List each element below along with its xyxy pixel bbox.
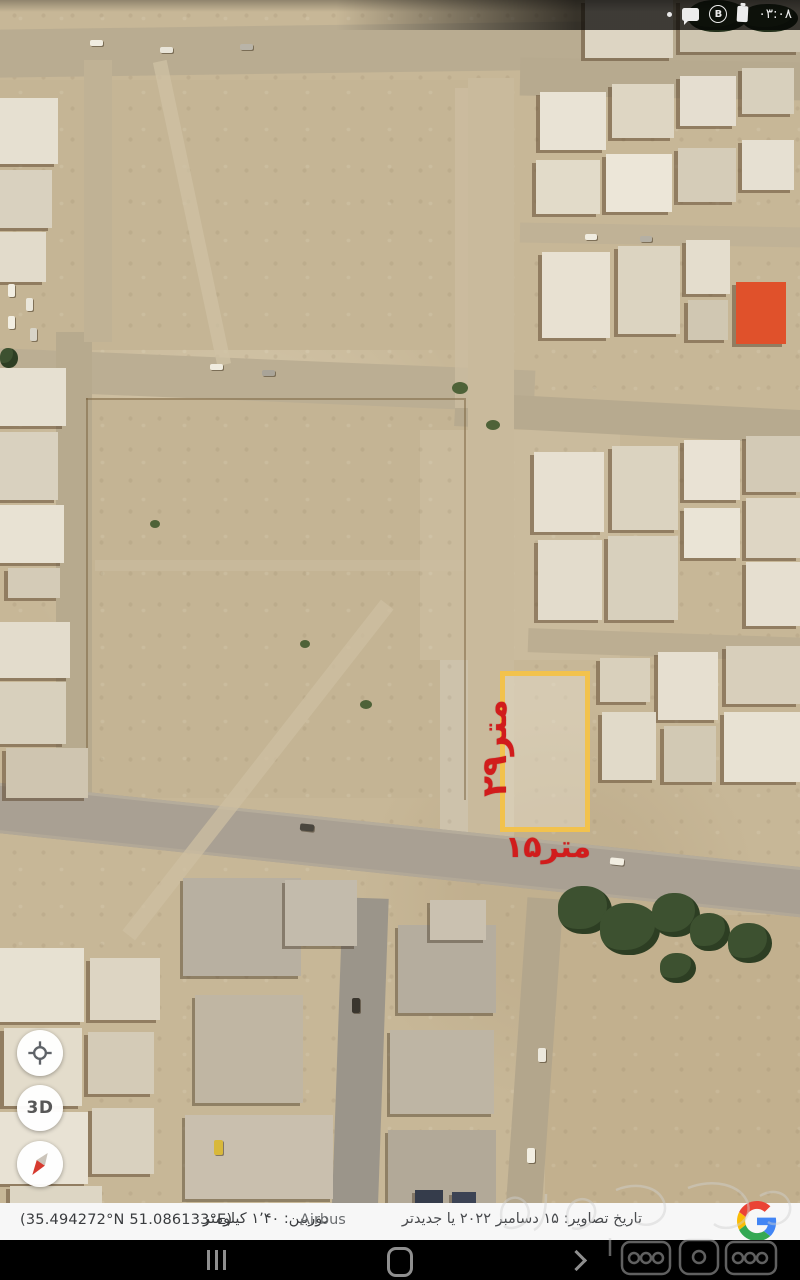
orange-roof-building	[736, 282, 786, 344]
imagery-provider-label: Airbus	[300, 1212, 346, 1228]
status-bar: B ۰۳:۰۸	[667, 0, 800, 28]
my-location-icon	[26, 1039, 54, 1067]
plot-width-label: ۱۵متر	[498, 830, 598, 865]
google-logo-icon	[737, 1201, 777, 1241]
home-button[interactable]	[387, 1247, 413, 1277]
plot-height-label: ۲۹متر	[475, 673, 515, 823]
notification-dot-icon	[667, 12, 672, 17]
satellite-map[interactable]: ۲۹متر ۱۵متر B ۰۳:۰۸ 3D	[0, 0, 800, 1203]
imagery-date-label: تاریخ تصاویر: ۱۵ دسامبر ۲۰۲۲ یا جدیدتر	[402, 1211, 642, 1227]
chat-notification-icon	[682, 8, 699, 21]
my-location-button[interactable]	[17, 1030, 63, 1076]
compass-button[interactable]	[17, 1141, 63, 1187]
back-button[interactable]	[566, 1250, 587, 1271]
circle-b-notification-icon: B	[709, 5, 727, 23]
status-time: ۰۳:۰۸	[758, 6, 792, 22]
coordinates-readout: (35.494272°N 51.086133°E)	[20, 1212, 232, 1228]
compass-icon	[23, 1147, 57, 1181]
google-earth-screen: ۲۹متر ۱۵متر B ۰۳:۰۸ 3D	[0, 0, 800, 1280]
recents-button[interactable]	[207, 1250, 226, 1270]
battery-icon	[737, 6, 749, 23]
android-nav-bar	[0, 1240, 800, 1280]
3d-toggle-label: 3D	[27, 1098, 54, 1118]
3d-toggle-button[interactable]: 3D	[17, 1085, 63, 1131]
info-bar: (35.494272°N 51.086133°E) دوربین: ۱٬۴۰ ک…	[0, 1203, 800, 1240]
